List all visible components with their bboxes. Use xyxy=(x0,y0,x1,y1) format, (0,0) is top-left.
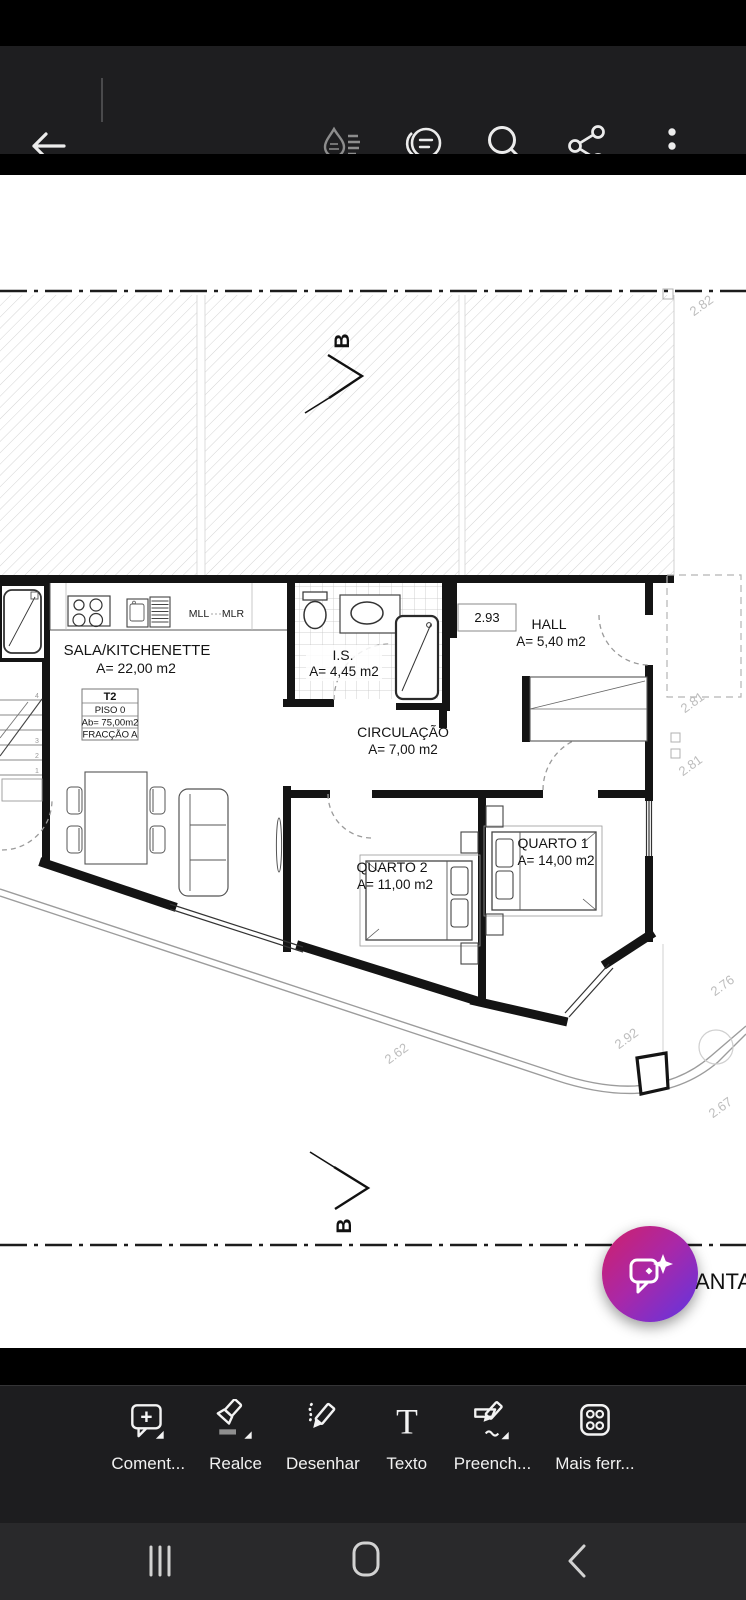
room-area-sala: A= 22,00 m2 xyxy=(96,660,176,676)
clipped-plan-title: ANTA xyxy=(695,1269,746,1294)
toilet-symbol xyxy=(304,602,326,629)
tool-label: Texto xyxy=(386,1454,427,1474)
appliance-symbol xyxy=(150,597,170,627)
app-toolbar xyxy=(0,46,746,154)
pdf-page-canvas[interactable]: B xyxy=(0,175,746,1348)
kitchen xyxy=(50,583,287,630)
room-area-quarto1: A= 14,00 m2 xyxy=(518,853,595,868)
dim-top-right: 2.82 xyxy=(687,292,716,319)
tv-symbol xyxy=(276,818,281,872)
pencil-draw-icon xyxy=(300,1399,346,1445)
column-circle xyxy=(699,1030,733,1064)
highlight-tool-button[interactable]: Realce xyxy=(209,1399,262,1523)
room-label-is: I.S. xyxy=(332,647,353,663)
back-nav-icon[interactable] xyxy=(556,1539,600,1583)
dim-right-upper: 2.81 xyxy=(678,689,707,716)
status-bar xyxy=(0,0,746,46)
closet xyxy=(530,677,647,741)
stair-number: 3 xyxy=(35,738,39,745)
room-label-hall: HALL xyxy=(531,616,566,632)
fill-and-sign-icon xyxy=(469,1399,515,1445)
tool-label: Mais ferr... xyxy=(555,1454,634,1474)
unit-type: T2 xyxy=(104,691,117,703)
dim-bottom-right-upper: 2.76 xyxy=(708,972,737,999)
room-label-circulacao: CIRCULAÇÃO xyxy=(357,724,449,740)
stair-number: 1 xyxy=(35,768,39,775)
unit-info-box: T2 PISO 0 Ab= 75,00m2 FRACÇÃO A xyxy=(82,689,139,741)
text-tool-icon: T xyxy=(384,1399,430,1445)
kitchen-label-mll: MLL xyxy=(189,608,210,620)
dining-table-symbol xyxy=(85,772,147,864)
highlighter-icon xyxy=(213,1399,259,1445)
letterbox-bottom xyxy=(0,1348,746,1385)
home-icon[interactable] xyxy=(344,1537,388,1581)
android-nav-bar xyxy=(0,1523,746,1600)
room-label-quarto2: QUARTO 2 xyxy=(356,859,427,875)
comment-add-icon xyxy=(125,1399,171,1445)
tool-label: Preench... xyxy=(454,1454,532,1474)
unit-fraction: FRACÇÃO A xyxy=(83,730,139,741)
kitchen-label-mlr: MLR xyxy=(222,608,245,620)
letterbox-top xyxy=(0,154,746,175)
room-label-sala: SALA/KITCHENETTE xyxy=(64,642,211,659)
room-label-quarto1: QUARTO 1 xyxy=(517,835,588,851)
room-area-quarto2: A= 11,00 m2 xyxy=(357,877,433,892)
entry-porch-outline xyxy=(667,575,741,697)
unit-floor: PISO 0 xyxy=(95,705,126,716)
ai-assistant-fab[interactable] xyxy=(602,1226,698,1322)
stairs-and-shower xyxy=(0,584,46,801)
stair-number: 4 xyxy=(35,693,39,700)
more-tools-button[interactable]: Mais ferr... xyxy=(555,1399,634,1523)
room-area-circulacao: A= 7,00 m2 xyxy=(368,742,437,757)
section-letter: B xyxy=(331,333,354,348)
text-tool-glyph: T xyxy=(396,1402,418,1442)
dim-bottom-middle: 2.92 xyxy=(612,1025,641,1052)
tool-label: Realce xyxy=(209,1454,262,1474)
text-tool-button[interactable]: T Texto xyxy=(384,1399,430,1523)
recents-icon[interactable] xyxy=(138,1539,182,1583)
more-tools-icon xyxy=(572,1399,618,1445)
phone-screen: B xyxy=(0,0,746,1600)
room-area-is: A= 4,45 m2 xyxy=(309,664,378,679)
sofa-symbol xyxy=(179,789,228,896)
toolbar-divider xyxy=(101,78,103,122)
section-marker-bottom: B xyxy=(310,1152,368,1234)
ai-chat-sparkle-icon xyxy=(627,1251,673,1297)
dim-bottom-right-lower: 2.67 xyxy=(706,1094,735,1121)
bathroom xyxy=(295,583,442,699)
annotation-toolbar: Coment... Realce Desenhar xyxy=(0,1385,746,1523)
tool-label: Desenhar xyxy=(286,1454,360,1474)
pillar-symbol xyxy=(637,1053,668,1094)
fill-sign-tool-button[interactable]: Preench... xyxy=(454,1399,532,1523)
dim-bottom-left: 2.62 xyxy=(382,1040,411,1067)
section-letter: B xyxy=(333,1218,356,1233)
stove-symbol xyxy=(68,596,110,626)
stair-number: 2 xyxy=(35,753,39,760)
floor-plan-drawing: B xyxy=(0,175,746,1348)
quarto2-furniture xyxy=(360,832,480,964)
unit-area: Ab= 75,00m2 xyxy=(82,718,139,729)
tool-label: Coment... xyxy=(111,1454,185,1474)
room-area-hall: A= 5,40 m2 xyxy=(516,634,585,649)
draw-tool-button[interactable]: Desenhar xyxy=(286,1399,360,1523)
level-box: 2.93 xyxy=(458,604,516,631)
comment-tool-button[interactable]: Coment... xyxy=(111,1399,185,1523)
sink-symbol xyxy=(351,602,383,624)
level-value: 2.93 xyxy=(474,610,499,625)
quarto1-furniture xyxy=(484,806,602,935)
